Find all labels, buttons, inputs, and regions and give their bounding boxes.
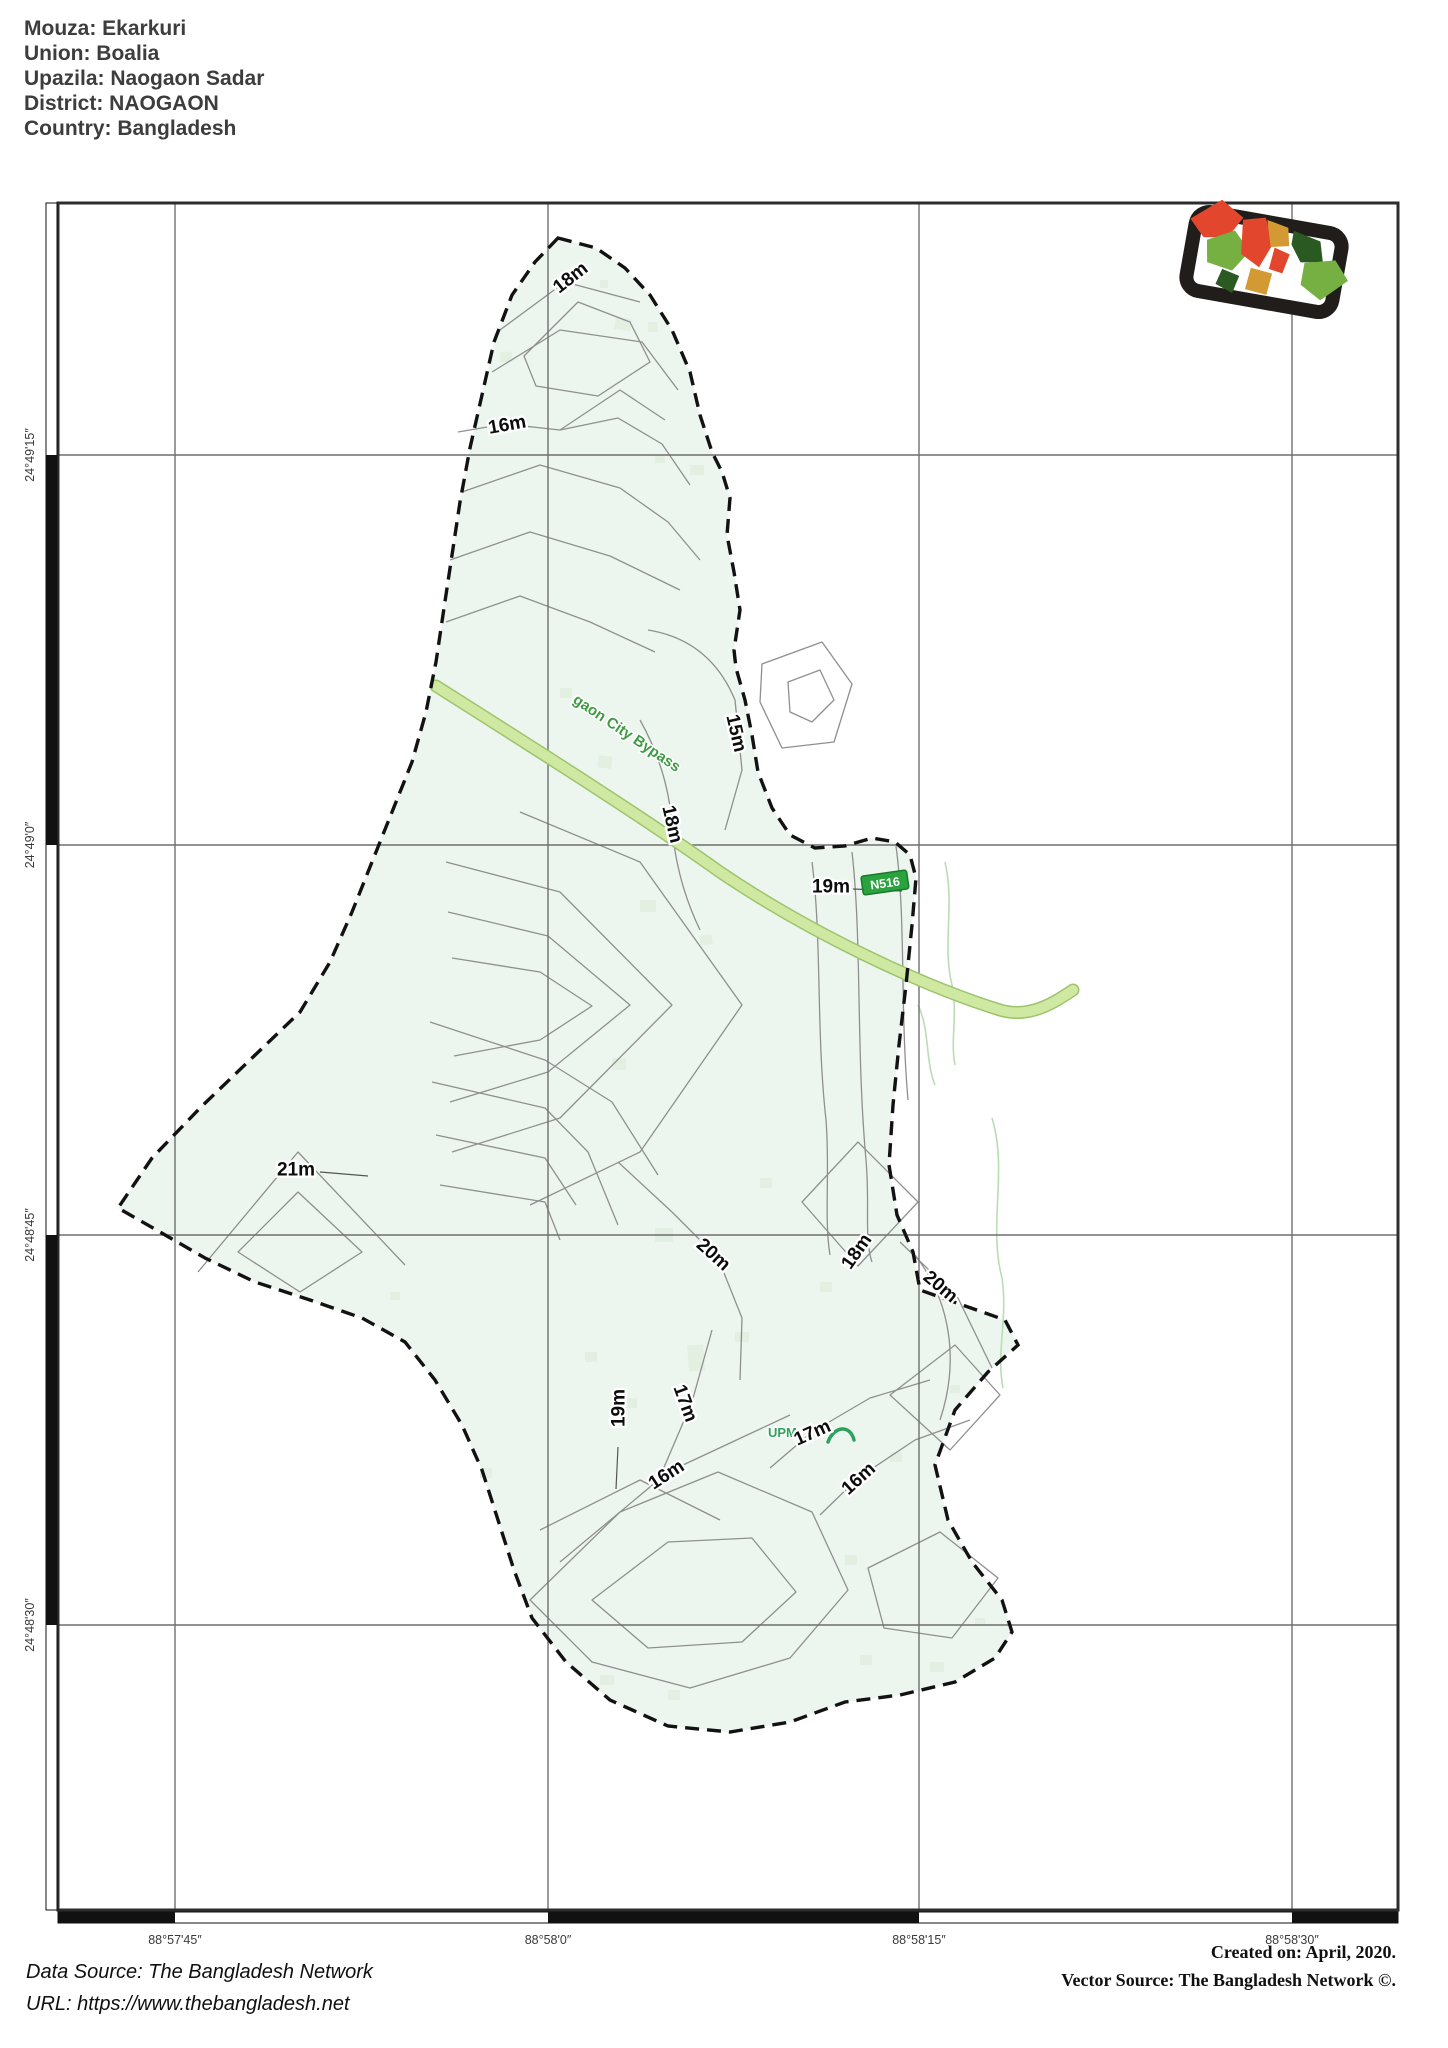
vector-source-text: Vector Source: The Bangladesh Network ©. (1061, 1966, 1396, 1994)
lat-label: 24°48'45″ (23, 1208, 37, 1262)
lat-label: 24°49'15″ (23, 428, 37, 482)
map-canvas: gaon City Bypass UPM N516 18m 16m 15m 18… (0, 0, 1448, 2048)
lat-label: 24°49'0″ (23, 821, 37, 868)
contour-label: 19m (609, 1389, 630, 1427)
bangladesh-map-icon (1178, 195, 1358, 316)
url-text: URL: https://www.thebangladesh.net (26, 1988, 373, 2020)
lon-label: 88°58'15″ (892, 1933, 946, 1947)
created-on-text: Created on: April, 2020. (1061, 1938, 1396, 1966)
data-source-text: Data Source: The Bangladesh Network (26, 1956, 373, 1988)
map-sheet: Mouza: Ekarkuri Union: Boalia Upazila: N… (0, 0, 1448, 2048)
footer-credits-left: Data Source: The Bangladesh Network URL:… (26, 1956, 373, 2020)
lat-label: 24°48'30″ (23, 1598, 37, 1652)
lon-label: 88°58'0″ (525, 1933, 572, 1947)
contour-label: 19m (812, 877, 850, 898)
mouza-area (118, 238, 1018, 1732)
footer-credits-right: Created on: April, 2020. Vector Source: … (1061, 1938, 1396, 1994)
contour-label: 21m (277, 1160, 315, 1181)
lon-label: 88°57'45″ (148, 1933, 202, 1947)
